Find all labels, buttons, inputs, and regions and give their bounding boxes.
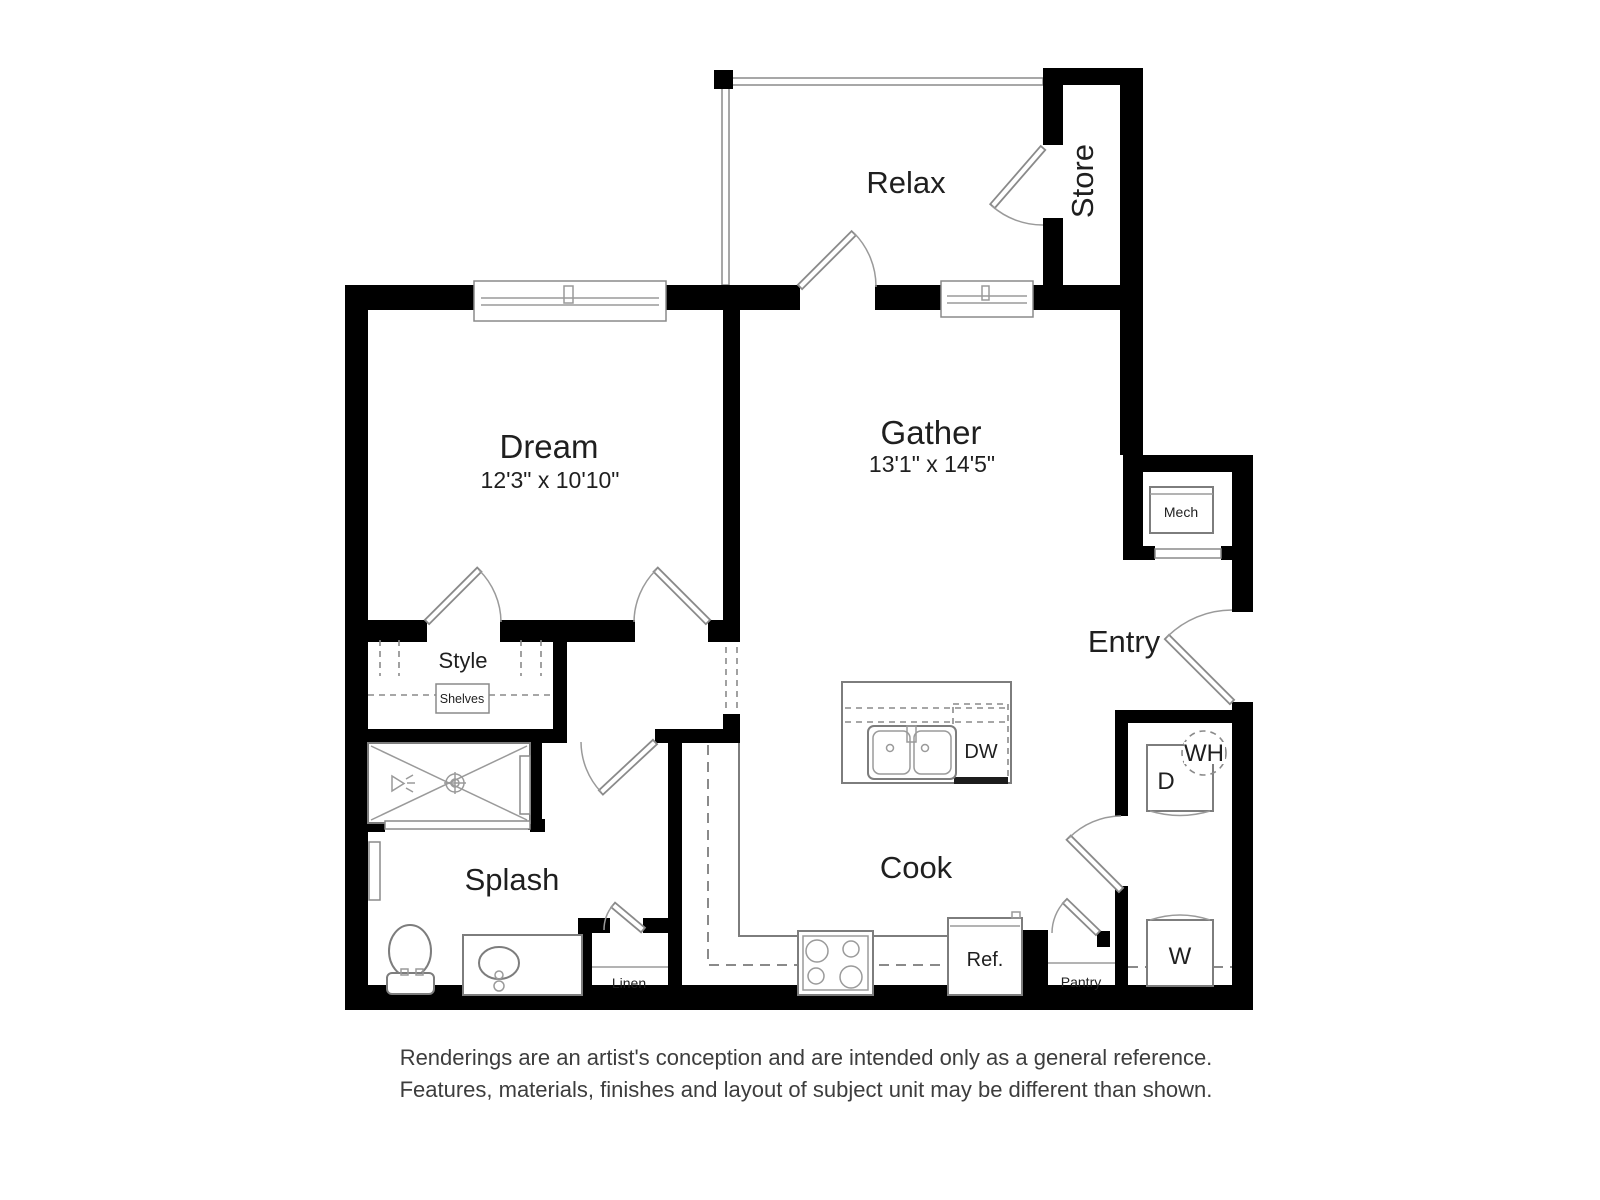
room-label-style: Style bbox=[439, 648, 488, 673]
floor-plan-page: Relax Store Dream 12'3" x 10'10" Gather … bbox=[0, 0, 1600, 1200]
room-label-splash: Splash bbox=[465, 862, 560, 897]
room-label-relax: Relax bbox=[866, 165, 946, 200]
kitchen-sink-icon bbox=[868, 726, 956, 779]
floor-plan-svg: Relax Store Dream 12'3" x 10'10" Gather … bbox=[0, 0, 1600, 1200]
hall-gather-opening bbox=[726, 647, 737, 712]
label-shelves: Shelves bbox=[440, 692, 484, 706]
splash-door bbox=[581, 740, 657, 795]
vanity-sink-icon bbox=[463, 935, 582, 995]
label-linen: Linen bbox=[612, 975, 646, 991]
pantry-door bbox=[1052, 899, 1100, 935]
toilet-icon bbox=[387, 925, 434, 994]
room-label-dream: Dream bbox=[499, 428, 598, 465]
gather-window bbox=[941, 281, 1033, 317]
label-pantry: Pantry bbox=[1061, 974, 1101, 990]
kitchen-island bbox=[842, 682, 1011, 784]
label-dryer: D bbox=[1157, 768, 1174, 795]
room-label-cook: Cook bbox=[880, 850, 953, 885]
shower-icon bbox=[368, 743, 530, 829]
label-washer: W bbox=[1169, 943, 1192, 970]
room-label-gather: Gather bbox=[881, 414, 982, 451]
disclaimer-line-1: Renderings are an artist's conception an… bbox=[400, 1045, 1213, 1070]
label-water-heater: WH bbox=[1184, 740, 1224, 767]
dream-window bbox=[474, 281, 666, 321]
stove-icon bbox=[798, 931, 873, 995]
label-refrigerator: Ref. bbox=[967, 949, 1004, 971]
room-dims-gather: 13'1" x 14'5" bbox=[869, 451, 995, 477]
room-dims-dream: 12'3" x 10'10" bbox=[481, 467, 620, 493]
laundry-door bbox=[1067, 816, 1124, 892]
store-door bbox=[990, 146, 1045, 225]
disclaimer-line-2: Features, materials, finishes and layout… bbox=[400, 1077, 1213, 1102]
label-dishwasher: DW bbox=[964, 741, 997, 763]
dream-hall-door bbox=[634, 568, 710, 625]
splash-wall-niche bbox=[369, 842, 380, 900]
entry-door bbox=[1165, 610, 1234, 704]
relax-door bbox=[798, 231, 876, 289]
mech-bifold-door bbox=[1155, 549, 1221, 558]
room-label-entry: Entry bbox=[1088, 624, 1161, 659]
label-mech: Mech bbox=[1164, 504, 1198, 520]
linen-door bbox=[604, 903, 645, 933]
dream-style-door bbox=[425, 568, 501, 625]
room-label-store: Store bbox=[1065, 144, 1100, 218]
